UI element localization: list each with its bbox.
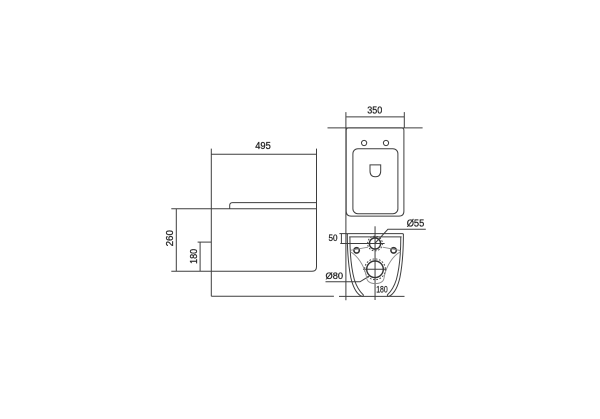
svg-text:260: 260 <box>165 230 176 247</box>
svg-text:50: 50 <box>329 233 338 243</box>
svg-text:495: 495 <box>255 141 271 152</box>
svg-text:350: 350 <box>367 106 382 117</box>
svg-text:Ø55: Ø55 <box>407 218 425 229</box>
svg-text:180: 180 <box>376 284 388 294</box>
svg-text:180: 180 <box>189 249 200 264</box>
svg-text:Ø80: Ø80 <box>326 271 344 281</box>
